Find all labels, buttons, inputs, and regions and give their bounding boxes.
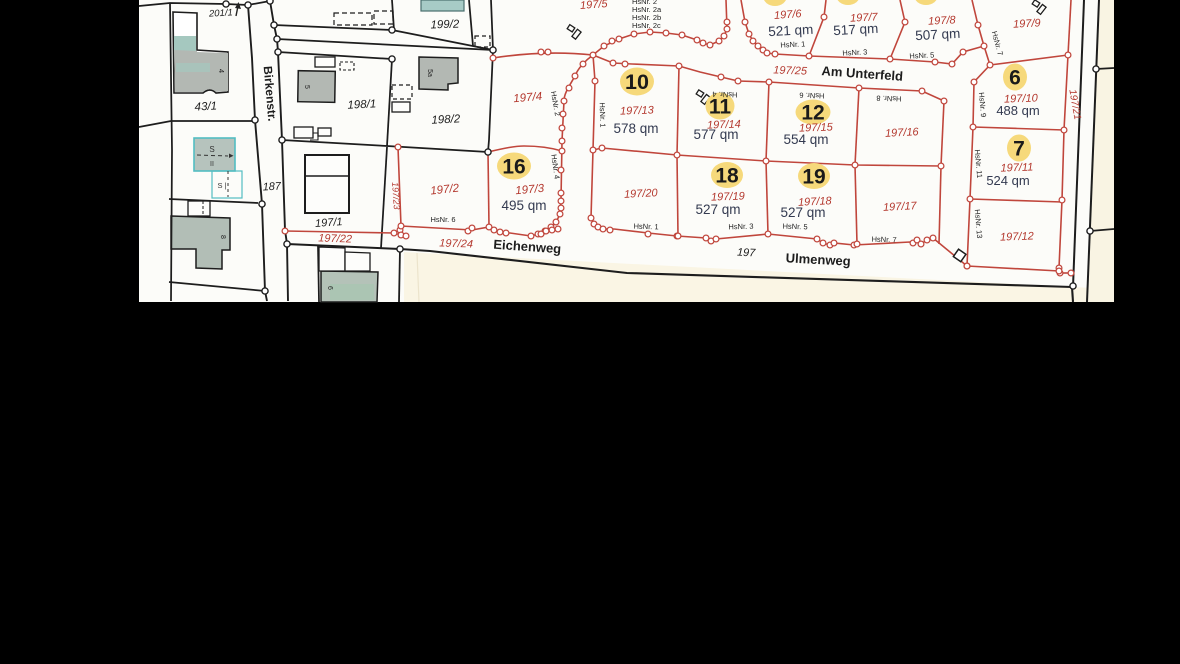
svg-text:5a: 5a [426, 69, 433, 77]
svg-text:577 qm: 577 qm [693, 127, 738, 142]
svg-text:197/25: 197/25 [773, 64, 808, 77]
svg-text:197/3: 197/3 [515, 183, 545, 198]
svg-text:507 qm: 507 qm [915, 26, 961, 43]
svg-text:HsNr. 7: HsNr. 7 [871, 235, 896, 245]
svg-text:5: 5 [303, 85, 310, 89]
svg-text:198/2: 198/2 [431, 113, 461, 127]
svg-text:201/1: 201/1 [208, 7, 233, 19]
svg-text:197/22: 197/22 [318, 232, 352, 245]
svg-text:187: 187 [262, 180, 282, 193]
svg-text:488 qm: 488 qm [996, 103, 1039, 118]
svg-text:6: 6 [1009, 66, 1021, 89]
svg-text:8: 8 [219, 235, 226, 239]
svg-text:HsNr. 3: HsNr. 3 [728, 222, 753, 232]
svg-text:197/1: 197/1 [315, 216, 343, 230]
svg-text:578 qm: 578 qm [613, 121, 658, 136]
svg-text:4: 4 [217, 69, 226, 73]
svg-text:197/24: 197/24 [439, 237, 473, 250]
svg-text:517 qm: 517 qm [833, 21, 879, 38]
svg-text:HsNr. 1: HsNr. 1 [598, 102, 608, 127]
svg-text:S: S [209, 145, 214, 154]
svg-text:HsNr. 8: HsNr. 8 [876, 94, 901, 104]
svg-text:10: 10 [625, 70, 649, 94]
svg-text:198/1: 198/1 [347, 98, 376, 111]
svg-text:197/5: 197/5 [580, 0, 609, 12]
svg-text:HsNr. 5: HsNr. 5 [909, 50, 934, 60]
svg-text:19: 19 [802, 165, 825, 188]
svg-text:6: 6 [326, 286, 333, 290]
svg-text:HsNr. 2HsNr. 2aHsNr. 2bHsNr. 2: HsNr. 2HsNr. 2aHsNr. 2bHsNr. 2c [632, 0, 662, 30]
svg-text:197/6: 197/6 [774, 8, 803, 22]
svg-text:HsNr. 1: HsNr. 1 [780, 39, 805, 49]
svg-text:43/1: 43/1 [194, 100, 217, 113]
svg-text:16: 16 [502, 155, 525, 178]
svg-text:197/16: 197/16 [885, 126, 920, 140]
svg-text:527 qm: 527 qm [780, 205, 825, 220]
svg-text:197/17: 197/17 [883, 200, 918, 214]
svg-text:197/4: 197/4 [513, 91, 543, 105]
svg-text:527 qm: 527 qm [695, 202, 740, 217]
svg-text:554 qm: 554 qm [783, 132, 828, 147]
svg-text:197/13: 197/13 [620, 104, 655, 117]
svg-text:197/23: 197/23 [390, 182, 402, 210]
svg-text:HsNr. 5: HsNr. 5 [782, 222, 807, 232]
svg-text:HsNr. 6: HsNr. 6 [799, 91, 824, 101]
svg-text:199/2: 199/2 [430, 18, 460, 31]
svg-text:524 qm: 524 qm [986, 173, 1029, 188]
svg-text:HsNr. 6: HsNr. 6 [430, 215, 455, 224]
svg-text:7: 7 [1013, 137, 1025, 160]
svg-text:18: 18 [715, 164, 739, 187]
svg-text:197: 197 [737, 247, 757, 260]
svg-text:197/9: 197/9 [1013, 17, 1041, 30]
svg-text:521 qm: 521 qm [768, 22, 814, 39]
svg-text:197/20: 197/20 [624, 187, 659, 201]
svg-text:HsNr. 1: HsNr. 1 [633, 222, 658, 232]
svg-text:HsNr. 3: HsNr. 3 [842, 47, 867, 57]
svg-text:197/12: 197/12 [1000, 230, 1034, 243]
svg-text:HsNr. 4: HsNr. 4 [712, 90, 737, 100]
svg-text:II: II [210, 161, 214, 168]
svg-text:S |: S | [217, 181, 226, 190]
svg-text:495 qm: 495 qm [501, 198, 546, 213]
